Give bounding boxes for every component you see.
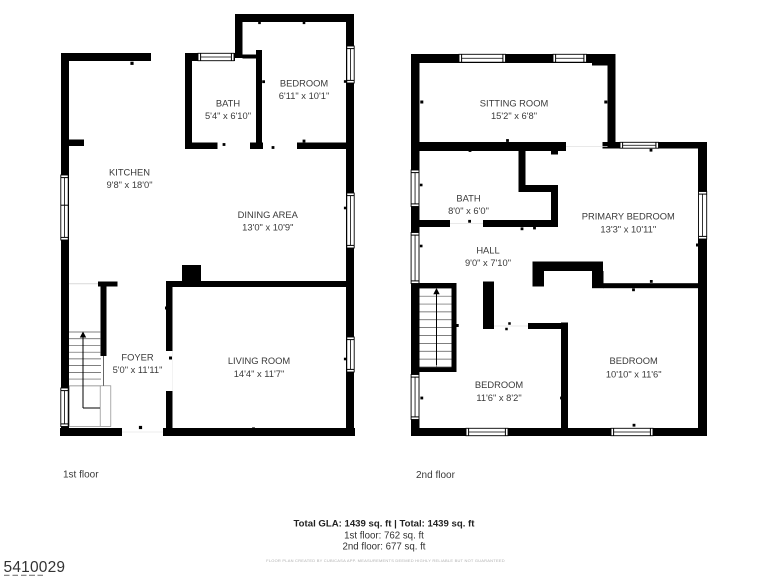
svg-text:5410029: 5410029 [4,559,66,576]
svg-text:14'4" x 11'7": 14'4" x 11'7" [234,369,285,379]
svg-text:13'0" x 10'9": 13'0" x 10'9" [242,223,293,233]
svg-text:5'4" x 6'10": 5'4" x 6'10" [205,111,251,121]
svg-text:DINING AREA: DINING AREA [238,210,299,220]
svg-text:6'11" x 10'1": 6'11" x 10'1" [279,91,330,101]
svg-text:9'8" x 18'0": 9'8" x 18'0" [106,180,152,190]
svg-text:FLOOR PLAN CREATED BY CUBICASA: FLOOR PLAN CREATED BY CUBICASA APP. MEAS… [266,558,505,563]
svg-text:BEDROOM: BEDROOM [475,380,523,390]
svg-text:11'6" x 8'2": 11'6" x 8'2" [476,393,521,403]
svg-text:HALL: HALL [476,245,499,255]
svg-text:2nd floor: 2nd floor [416,470,456,481]
svg-text:FOYER: FOYER [121,352,153,362]
svg-text:5'0" x 11'11": 5'0" x 11'11" [113,365,163,375]
svg-text:SITTING ROOM: SITTING ROOM [480,98,549,108]
svg-text:2nd floor: 677 sq. ft: 2nd floor: 677 sq. ft [343,542,426,553]
svg-text:PRIMARY BEDROOM: PRIMARY BEDROOM [582,212,675,222]
svg-text:13'3" x 10'11": 13'3" x 10'11" [600,225,656,235]
svg-text:Total GLA: 1439 sq. ft | Total: Total GLA: 1439 sq. ft | Total: 1439 sq.… [294,519,476,530]
svg-text:BATH: BATH [456,194,480,204]
svg-text:8'0" x 6'0": 8'0" x 6'0" [448,206,489,216]
svg-text:9'0" x 7'10": 9'0" x 7'10" [465,258,511,268]
svg-text:KITCHEN: KITCHEN [109,168,150,178]
svg-text:1st floor: 762 sq. ft: 1st floor: 762 sq. ft [344,530,424,541]
svg-text:15'2" x 6'8": 15'2" x 6'8" [491,111,537,121]
svg-text:LIVING ROOM: LIVING ROOM [228,356,291,366]
svg-text:10'10" x 11'6": 10'10" x 11'6" [606,369,662,379]
svg-text:BEDROOM: BEDROOM [280,79,328,89]
svg-text:BEDROOM: BEDROOM [610,356,658,366]
svg-text:BATH: BATH [216,98,240,108]
svg-text:1st floor: 1st floor [63,470,99,481]
